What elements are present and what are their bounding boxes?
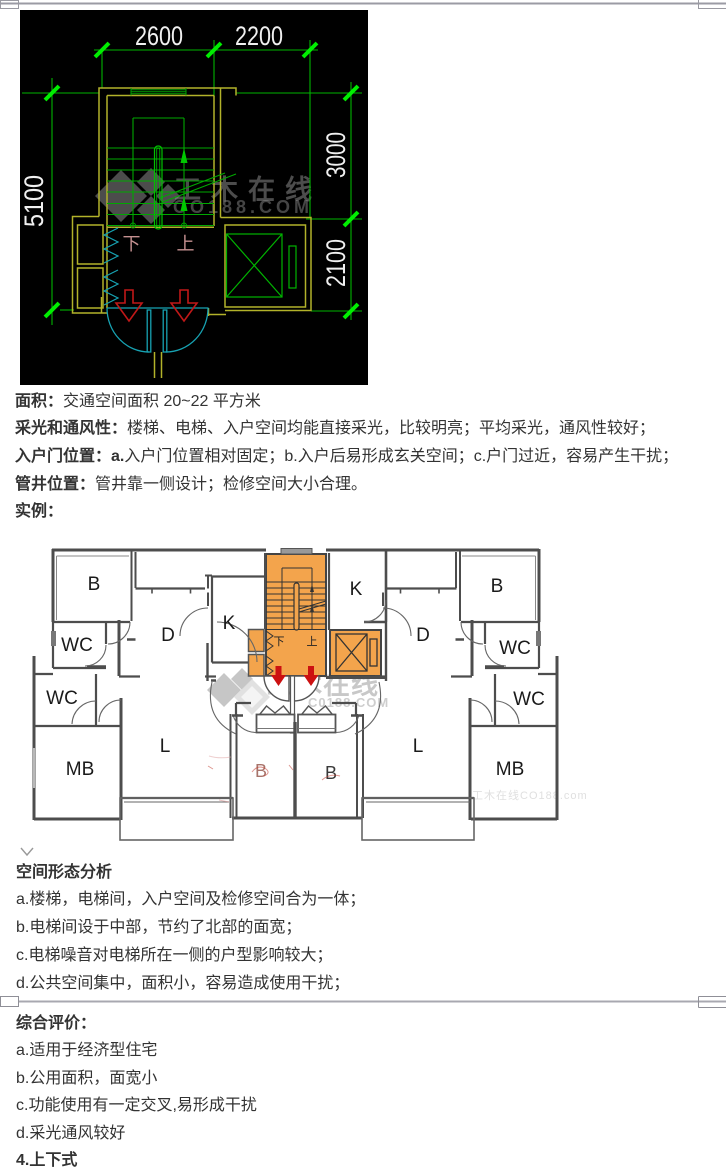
- svg-text:B: B: [255, 761, 267, 781]
- svg-text:5100: 5100: [20, 175, 49, 227]
- svg-text:B: B: [88, 574, 101, 595]
- svg-text:L: L: [160, 736, 171, 757]
- svg-text:L: L: [413, 736, 424, 757]
- svg-text:MB: MB: [496, 759, 525, 780]
- svg-text:D: D: [416, 625, 430, 646]
- svg-text:K: K: [350, 579, 363, 600]
- svg-text:2200: 2200: [235, 21, 283, 51]
- svg-text:WC: WC: [46, 688, 78, 709]
- svg-text:3000: 3000: [321, 132, 351, 178]
- svg-text:工木在线CO188.com: 工木在线CO188.com: [472, 788, 588, 802]
- svg-text:B: B: [491, 576, 504, 597]
- svg-text:上: 上: [307, 635, 318, 648]
- svg-text:MB: MB: [66, 759, 95, 780]
- svg-text:上: 上: [177, 234, 195, 254]
- svg-text:下: 下: [123, 234, 141, 254]
- svg-text:2600: 2600: [135, 21, 183, 51]
- svg-text:2100: 2100: [321, 239, 351, 287]
- svg-text:D: D: [161, 625, 175, 646]
- svg-text:WC: WC: [499, 638, 531, 659]
- svg-text:WC: WC: [513, 689, 545, 710]
- svg-text:B: B: [325, 763, 337, 783]
- svg-text:下: 下: [274, 636, 285, 648]
- svg-text:K: K: [223, 613, 236, 634]
- svg-text:WC: WC: [61, 635, 93, 656]
